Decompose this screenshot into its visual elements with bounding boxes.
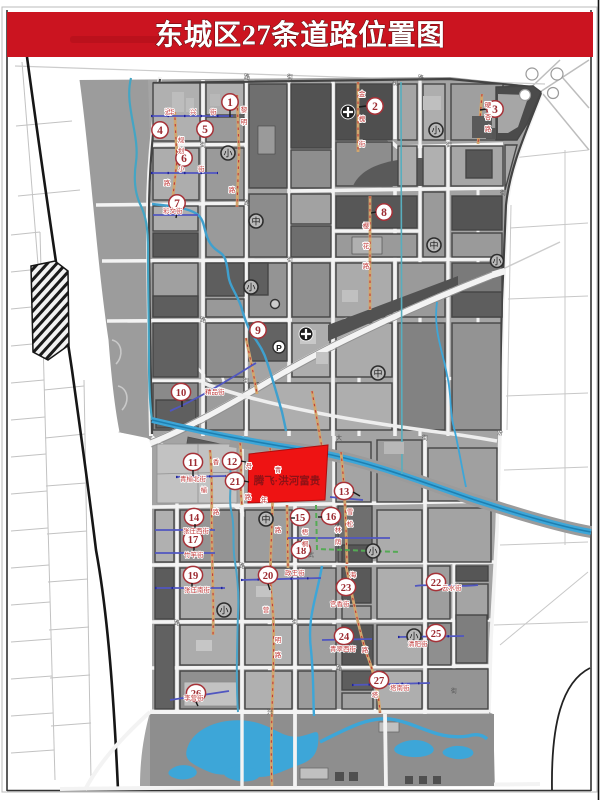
svg-text:1: 1 [227, 97, 233, 109]
svg-text:竹竿街: 竹竿街 [184, 550, 204, 559]
svg-text:街: 街 [198, 164, 205, 173]
svg-text:政王街: 政王街 [285, 568, 305, 577]
svg-text:路: 路 [239, 562, 245, 570]
svg-text:路: 路 [229, 185, 236, 194]
svg-text:路: 路 [363, 261, 370, 270]
svg-text:10: 10 [176, 388, 187, 399]
svg-text:营: 营 [263, 605, 270, 614]
svg-text:中: 中 [429, 240, 438, 251]
svg-text:街: 街 [287, 256, 293, 264]
svg-text:兴: 兴 [267, 708, 273, 716]
svg-text:街: 街 [210, 107, 217, 116]
svg-text:榆: 榆 [201, 485, 208, 494]
svg-text:规: 规 [178, 135, 185, 144]
svg-text:路: 路 [200, 316, 206, 324]
svg-text:云水街: 云水街 [442, 583, 462, 592]
svg-text:12: 12 [227, 457, 238, 468]
svg-text:东城区27条道路位置图: 东城区27条道路位置图 [155, 19, 446, 52]
svg-text:19: 19 [188, 571, 199, 582]
svg-text:槐: 槐 [359, 114, 366, 123]
svg-text:街: 街 [446, 141, 452, 149]
svg-text:小: 小 [368, 547, 377, 557]
svg-text:腾飞·洪河富贵: 腾飞·洪河富贵 [253, 474, 321, 487]
svg-text:街: 街 [451, 687, 457, 695]
svg-text:小: 小 [246, 283, 255, 293]
svg-text:8: 8 [381, 207, 387, 219]
svg-text:23: 23 [341, 583, 352, 594]
svg-text:清阳街: 清阳街 [408, 639, 428, 648]
svg-text:青榆北街: 青榆北街 [180, 474, 207, 483]
svg-text:花: 花 [363, 241, 370, 250]
svg-text:槐: 槐 [392, 79, 398, 87]
svg-text:路: 路 [174, 619, 180, 627]
svg-text:街: 街 [287, 73, 293, 81]
svg-text:5: 5 [202, 124, 208, 136]
svg-text:大: 大 [336, 434, 342, 442]
svg-text:街: 街 [359, 139, 366, 148]
svg-text:3: 3 [492, 104, 498, 116]
svg-text:华: 华 [168, 107, 175, 116]
svg-text:樱: 樱 [363, 221, 370, 230]
svg-text:P: P [276, 343, 282, 353]
svg-text:青: 青 [275, 465, 282, 474]
svg-text:明: 明 [275, 636, 282, 644]
svg-text:武: 武 [308, 551, 314, 559]
svg-text:路: 路 [244, 199, 250, 207]
svg-text:梧: 梧 [302, 527, 309, 536]
svg-text:路: 路 [336, 664, 342, 672]
svg-text:15: 15 [295, 513, 306, 524]
svg-text:路: 路 [245, 492, 252, 501]
svg-text:金: 金 [359, 89, 366, 98]
svg-text:塔南街: 塔南街 [390, 683, 410, 692]
svg-text:松: 松 [347, 519, 354, 528]
svg-text:荫: 荫 [335, 537, 342, 546]
svg-text:22: 22 [431, 578, 442, 589]
svg-text:黎: 黎 [241, 105, 248, 114]
svg-text:中: 中 [251, 216, 260, 227]
svg-text:兴: 兴 [190, 107, 197, 116]
svg-text:明: 明 [241, 118, 248, 126]
svg-text:17: 17 [188, 535, 199, 546]
svg-text:16: 16 [326, 512, 337, 523]
svg-text:小: 小 [492, 257, 501, 267]
svg-text:香: 香 [213, 457, 220, 466]
svg-text:中: 中 [373, 368, 382, 379]
svg-text:25: 25 [431, 629, 442, 640]
svg-text:路: 路 [275, 525, 282, 534]
svg-text:汾: 汾 [497, 429, 503, 437]
svg-text:丹: 丹 [246, 462, 253, 470]
svg-text:街: 街 [292, 618, 298, 626]
svg-text:27: 27 [374, 676, 385, 687]
svg-text:24: 24 [339, 632, 350, 643]
svg-text:海: 海 [350, 570, 357, 579]
svg-text:精品街: 精品街 [205, 387, 225, 396]
svg-text:雪: 雪 [347, 508, 354, 516]
svg-text:路: 路 [275, 650, 282, 659]
svg-text:林: 林 [335, 525, 342, 534]
svg-text:路: 路 [244, 73, 250, 81]
svg-text:小: 小 [409, 632, 418, 642]
svg-text:小: 小 [219, 606, 228, 616]
svg-text:街: 街 [422, 434, 428, 442]
svg-text:塔: 塔 [372, 690, 379, 699]
svg-text:21: 21 [230, 477, 241, 488]
svg-text:11: 11 [188, 458, 198, 469]
svg-text:青翠西街: 青翠西街 [330, 644, 357, 653]
svg-text:张庄南街: 张庄南街 [184, 585, 211, 594]
svg-text:路: 路 [418, 74, 424, 82]
svg-text:街: 街 [200, 141, 206, 149]
svg-text:年: 年 [261, 495, 268, 504]
svg-text:路: 路 [485, 124, 492, 133]
svg-text:中: 中 [261, 514, 270, 525]
svg-text:路: 路 [213, 507, 220, 516]
svg-text:张庄西街: 张庄西街 [183, 526, 210, 535]
svg-text:宫香街: 宫香街 [330, 599, 350, 608]
svg-text:路: 路 [164, 178, 171, 187]
svg-text:硬: 硬 [485, 101, 492, 109]
svg-text:划: 划 [178, 146, 185, 155]
svg-text:路: 路 [362, 645, 369, 654]
svg-text:李营街: 李营街 [184, 693, 204, 702]
svg-text:小: 小 [223, 149, 232, 159]
svg-text:9: 9 [255, 325, 261, 337]
svg-text:13: 13 [339, 487, 350, 498]
svg-text:2: 2 [372, 101, 378, 113]
svg-text:14: 14 [189, 513, 200, 524]
svg-text:街: 街 [500, 189, 506, 197]
svg-text:小: 小 [431, 126, 440, 136]
svg-text:桐: 桐 [302, 539, 309, 548]
svg-text:杏: 杏 [485, 112, 492, 121]
svg-text:4: 4 [157, 125, 163, 137]
svg-text:街: 街 [243, 377, 249, 385]
svg-text:20: 20 [263, 571, 274, 582]
svg-text:彩文街: 彩文街 [163, 206, 183, 215]
svg-text:小: 小 [178, 164, 185, 173]
